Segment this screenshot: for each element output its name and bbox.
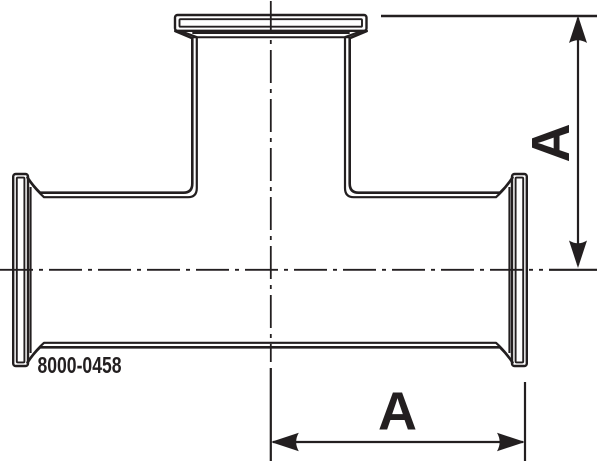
- vertical-dimension: A: [381, 16, 597, 270]
- top-ferrule: [175, 15, 367, 37]
- horizontal-dimension-label: A: [378, 382, 417, 442]
- vertical-dimension-label: A: [521, 124, 581, 163]
- body-top-right-contour: [350, 31, 513, 193]
- arrow-down-icon: [569, 241, 587, 269]
- technical-drawing-canvas: A A 8000-0458: [0, 0, 600, 463]
- body-top-left-contour: [28, 31, 193, 193]
- horizontal-dimension: A: [271, 368, 525, 461]
- arrow-up-icon: [569, 16, 587, 44]
- centerlines: [0, 1, 543, 362]
- tee-fitting-technical-drawing: A A 8000-0458: [0, 0, 600, 463]
- arrow-left-icon: [271, 433, 299, 451]
- body-top-right-inner-contour: [345, 32, 509, 198]
- part-number: 8000-0458: [38, 352, 122, 378]
- body-top-left-inner-contour: [31, 32, 197, 198]
- arrow-right-icon: [497, 433, 525, 451]
